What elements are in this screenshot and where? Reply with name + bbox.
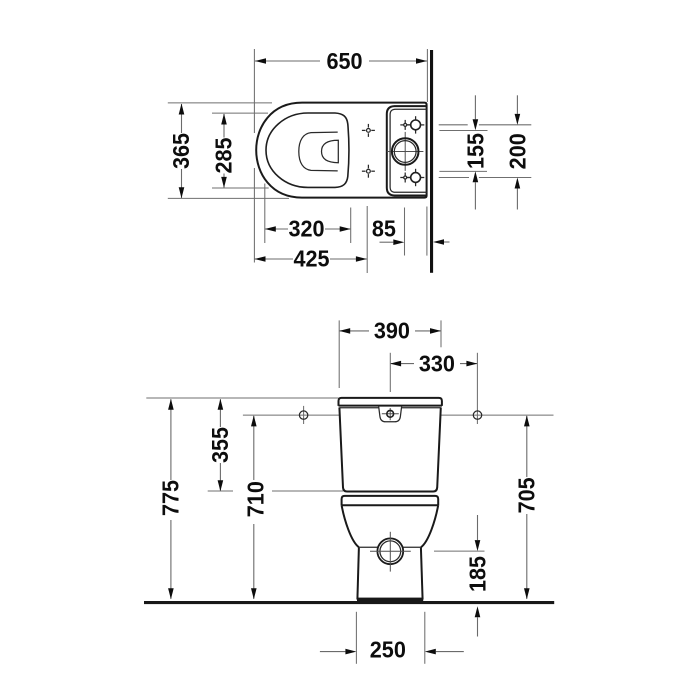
svg-text:320: 320 — [288, 216, 324, 242]
svg-text:710: 710 — [243, 481, 269, 517]
svg-text:425: 425 — [293, 246, 329, 272]
svg-text:250: 250 — [370, 637, 406, 663]
svg-text:200: 200 — [505, 133, 531, 169]
svg-text:650: 650 — [326, 49, 362, 75]
svg-text:85: 85 — [372, 216, 396, 242]
svg-text:705: 705 — [514, 477, 540, 513]
svg-text:390: 390 — [374, 318, 410, 344]
svg-text:185: 185 — [465, 556, 491, 592]
svg-text:285: 285 — [211, 137, 237, 173]
svg-text:330: 330 — [419, 351, 455, 377]
svg-text:775: 775 — [158, 480, 184, 516]
svg-text:355: 355 — [207, 427, 233, 463]
svg-text:365: 365 — [169, 133, 195, 169]
svg-text:155: 155 — [463, 133, 489, 169]
